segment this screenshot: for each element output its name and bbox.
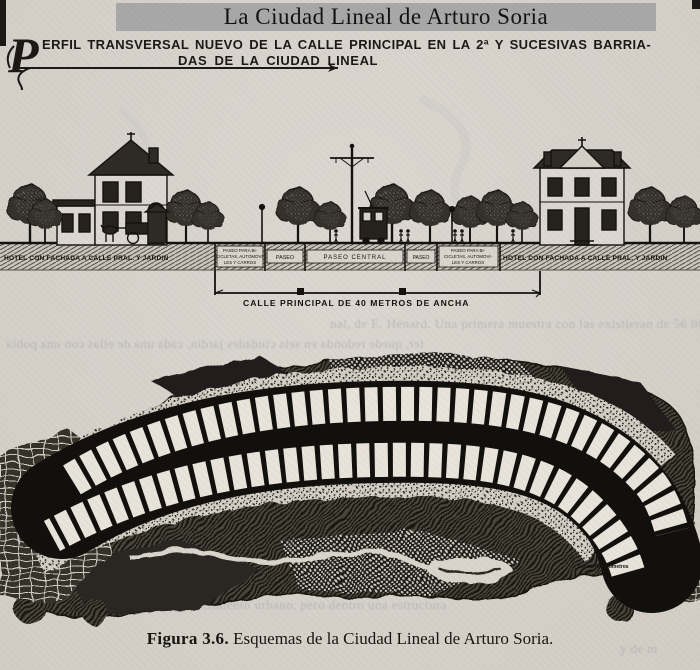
lane-label: CICLETAS, AUTOMOVI-	[216, 254, 265, 259]
lane-label: PASEO CENTRAL	[324, 255, 387, 261]
lane-label: PASEO PARA BI-	[223, 248, 258, 253]
lane-label-box: PASEO	[267, 250, 303, 263]
lane-label: PASEO PARA BI-	[451, 248, 486, 253]
figure-caption: Figura 3.6. Esquemas de la Ciudad Lineal…	[0, 629, 700, 649]
scan-artifact-corner	[692, 0, 700, 9]
lane-label-box: PASEO	[407, 250, 435, 263]
map-scale-label: Escala de Kilómetros	[578, 564, 629, 570]
terrain-blob	[82, 599, 108, 625]
lane-label-box: PASEO PARA BI- CICLETAS, AUTOMOVI- LES Y…	[439, 246, 498, 267]
lamp-post	[259, 204, 264, 243]
lane-label: LES Y CARROS	[452, 260, 484, 265]
lane-label: PASEO	[413, 255, 430, 261]
dimension-line	[215, 271, 540, 297]
street-cross-section-figure: HOTEL CON FACHADA A CALLE PRAL. Y JARDIN…	[0, 90, 700, 315]
scanned-book-page: nal, de E. Hénard. Una primera muestra c…	[0, 0, 700, 670]
left-hotel-label: HOTEL CON FACHADA A CALLE PRAL. Y JARDIN	[4, 255, 168, 262]
lane-label: PASEO	[276, 255, 294, 261]
lane-label-box: PASEO CENTRAL	[307, 250, 403, 263]
figure-number: Figura 3.6.	[147, 629, 229, 648]
right-hotel-label: HOTEL CON FACHADA A CALLE PRAL. Y JARDIN	[503, 255, 667, 262]
lane-label-box: PASEO PARA BI- CICLETAS, AUTOMOVI- LES Y…	[216, 246, 265, 267]
ghost-text-line: nal, de E. Hénard. Una primera muestra c…	[330, 316, 700, 332]
linear-city-plan-map: Escala de Kilómetros	[0, 340, 700, 630]
lane-label: CICLETAS, AUTOMOVI-	[444, 254, 493, 259]
figure-caption-text: Esquemas de la Ciudad Lineal de Arturo S…	[233, 629, 553, 648]
right-hotel-house	[534, 137, 630, 245]
street-width-dimension-label: CALLE PRINCIPAL DE 40 METROS DE ANCHA	[243, 298, 469, 308]
figure-heading: P ERFIL TRANSVERSAL NUEVO DE LA CALLE PR…	[0, 30, 700, 90]
page-title: La Ciudad Lineal de Arturo Soria	[116, 3, 656, 31]
heading-arrow-flourish	[0, 30, 700, 90]
lane-label: LES Y CARROS	[224, 260, 256, 265]
kiosk	[145, 204, 169, 243]
